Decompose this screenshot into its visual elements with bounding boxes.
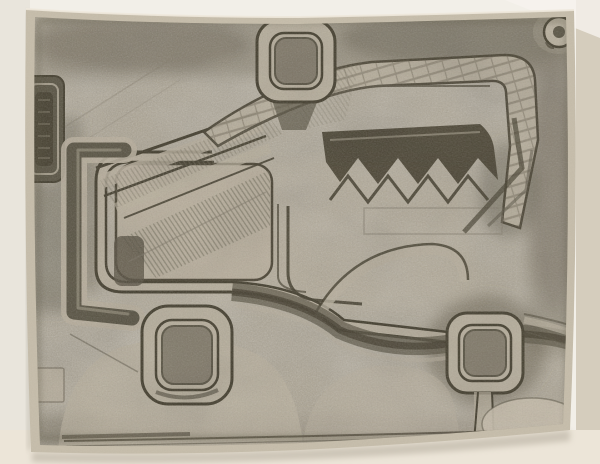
photo-of-abstract-print <box>0 0 600 464</box>
artwork-photo-canvas <box>0 0 600 464</box>
paper-grain-rect <box>23 8 580 458</box>
backdrop-right-strip <box>576 0 600 464</box>
paper-grain <box>23 8 580 458</box>
